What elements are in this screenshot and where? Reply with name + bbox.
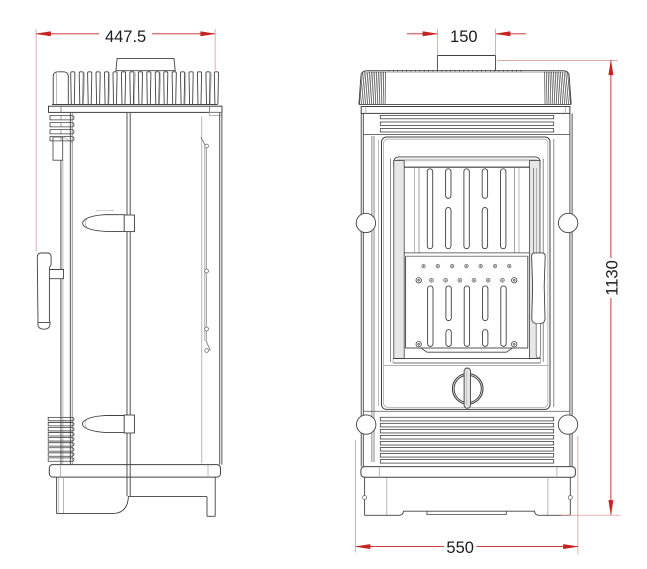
svg-text:550: 550 (446, 539, 474, 557)
svg-text:150: 150 (450, 28, 478, 46)
svg-text:1130: 1130 (604, 260, 622, 295)
svg-text:447.5: 447.5 (105, 28, 146, 46)
